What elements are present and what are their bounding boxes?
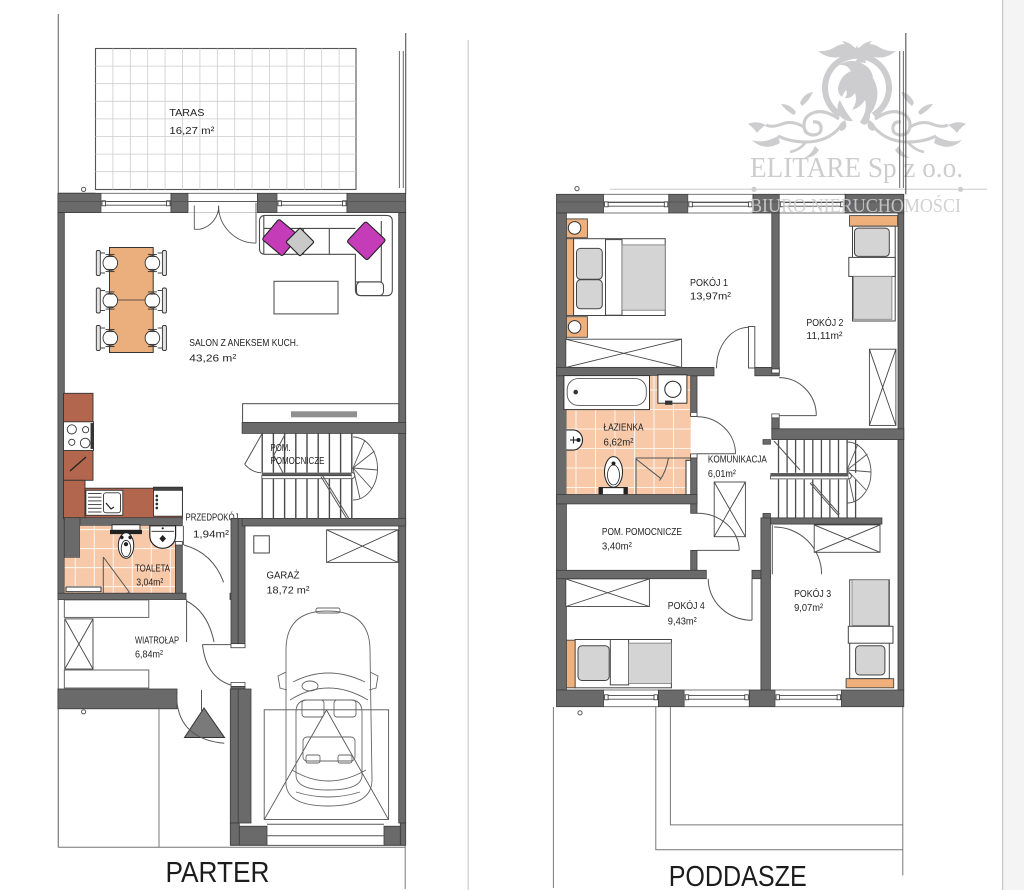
svg-text:16,27 m²: 16,27 m² (169, 126, 215, 137)
svg-text:POKÓJ 3: POKÓJ 3 (794, 587, 831, 600)
svg-text:6,01m²: 6,01m² (708, 469, 736, 480)
svg-text:POKÓJ 1: POKÓJ 1 (690, 276, 728, 289)
svg-text:3,40m²: 3,40m² (602, 542, 633, 553)
svg-text:6,62m²: 6,62m² (604, 437, 635, 448)
svg-text:WIATROŁAP: WIATROŁAP (135, 636, 179, 647)
svg-text:KOMUNIKACJA: KOMUNIKACJA (708, 455, 767, 466)
svg-text:POM.: POM. (271, 443, 291, 454)
svg-text:TOALETA: TOALETA (135, 564, 170, 575)
svg-text:9,43m²: 9,43m² (668, 617, 698, 628)
svg-text:POKÓJ 2: POKÓJ 2 (806, 316, 843, 329)
svg-text:6,84m²: 6,84m² (135, 650, 163, 661)
svg-text:11,11m²: 11,11m² (806, 331, 843, 342)
svg-text:ŁAZIENKA: ŁAZIENKA (604, 422, 644, 433)
svg-text:9,07m²: 9,07m² (794, 603, 824, 614)
svg-text:BIURO NIERUCHOMOŚCI: BIURO NIERUCHOMOŚCI (750, 195, 961, 217)
svg-text:13,97m²: 13,97m² (690, 292, 732, 303)
svg-text:1,94m²: 1,94m² (193, 530, 230, 541)
svg-text:PARTER: PARTER (166, 857, 270, 889)
svg-text:PRZEDPOKÓJ: PRZEDPOKÓJ (186, 511, 239, 524)
svg-text:POKÓJ 4: POKÓJ 4 (668, 599, 705, 612)
svg-text:POM. POMOCNICZE: POM. POMOCNICZE (602, 527, 682, 538)
svg-text:18,72 m²: 18,72 m² (267, 586, 311, 597)
svg-text:POMOCNICZE: POMOCNICZE (271, 456, 325, 467)
svg-text:SALON Z ANEKSEM KUCH.: SALON Z ANEKSEM KUCH. (189, 338, 298, 349)
svg-text:3,04m²: 3,04m² (136, 578, 163, 589)
svg-text:TARAS: TARAS (169, 108, 204, 119)
svg-text:43,26 m²: 43,26 m² (189, 354, 237, 365)
svg-text:GARAŻ: GARAŻ (267, 569, 300, 582)
svg-text:PODDASZE: PODDASZE (669, 861, 807, 890)
svg-text:ELITARE Sp z o.o.: ELITARE Sp z o.o. (750, 153, 963, 184)
